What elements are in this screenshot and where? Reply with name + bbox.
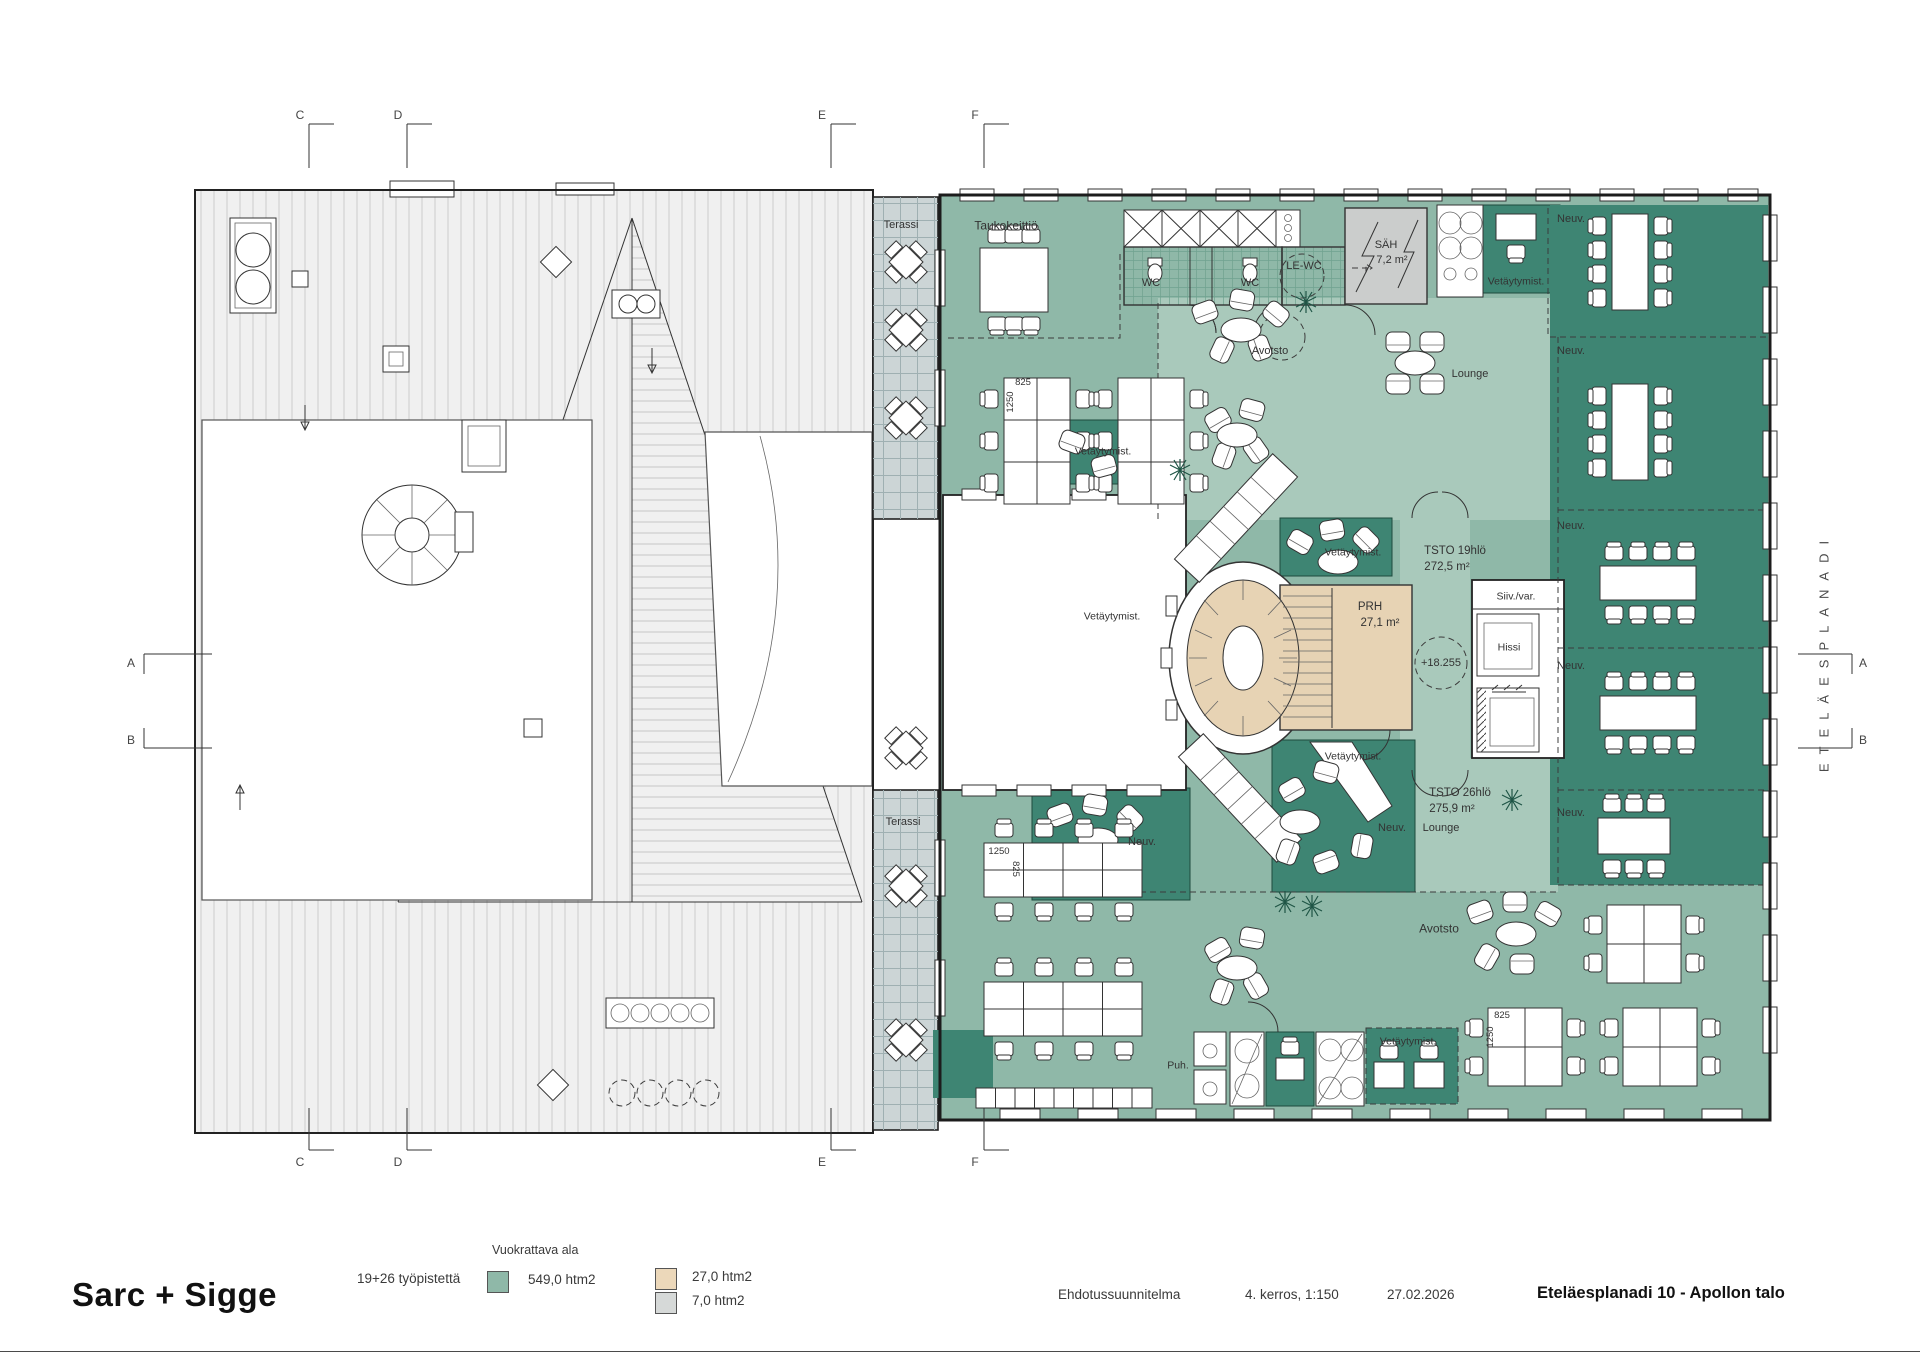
label-hissi: Hissi <box>1498 642 1521 653</box>
grid-col-e-top: E <box>818 108 826 122</box>
label-neuv-2: Neuv. <box>1557 346 1585 358</box>
project-title: Eteläesplanadi 10 - Apollon talo <box>1537 1284 1785 1303</box>
legend-workstations: 19+26 työpistettä <box>357 1271 460 1286</box>
label-vetaytymist-1: Vetäytymist. <box>1488 276 1545 287</box>
legend-swatch-gray <box>655 1292 677 1314</box>
main-stair-prh <box>1161 562 1412 760</box>
label-vetaytymist-6: Vetäytymist. <box>1380 1036 1437 1047</box>
label-siiv-var: Siiv./var. <box>1497 591 1536 602</box>
label-sah: SÄH <box>1375 240 1398 252</box>
left-building-roof <box>195 181 873 1133</box>
label-neuv-6: Neuv. <box>1378 823 1406 835</box>
firm-logo: Sarc + Sigge <box>72 1276 277 1314</box>
label-dim-1250-top: 1250 <box>1006 391 1016 412</box>
label-dim-825-bl: 825 <box>1010 861 1020 877</box>
label-neuv-3: Neuv. <box>1557 521 1585 533</box>
grid-col-f-top: F <box>971 108 978 122</box>
label-sah-area: 7,2 m² <box>1376 255 1407 267</box>
sheet-bottom-border <box>0 1351 1920 1352</box>
grid-col-c-top: C <box>296 108 305 122</box>
label-dim-825-br: 825 <box>1494 1011 1510 1021</box>
label-dim-1250-br: 1250 <box>1486 1026 1496 1047</box>
grid-col-d-bottom: D <box>394 1155 403 1169</box>
floor-plan-sheet: TerassiTerassiTaukokeittiöWCWCLE-WCSÄH7,… <box>0 0 1920 1358</box>
grid-row-b-left: B <box>127 733 135 747</box>
date: 27.02.2026 <box>1387 1287 1455 1302</box>
document-type: Ehdotussuunnitelma <box>1058 1287 1180 1302</box>
label-terassi-top: Terassi <box>884 220 919 232</box>
label-lounge-bottom: Lounge <box>1423 823 1460 835</box>
terrace-strips <box>873 197 938 1130</box>
label-vetaytymist-3: Vetäytymist. <box>1325 547 1382 558</box>
grid-col-e-bottom: E <box>818 1155 826 1169</box>
label-vetaytymist-5: Vetäytymist. <box>1325 751 1382 762</box>
label-tsto26: TSTO 26hlö <box>1429 787 1491 799</box>
legend-swatch-green <box>487 1271 509 1293</box>
legend-value-green: 549,0 htm2 <box>528 1272 596 1287</box>
grid-row-a-left: A <box>127 656 135 670</box>
elevator-block <box>1472 580 1564 758</box>
legend-title: Vuokrattava ala <box>492 1243 578 1257</box>
street-name: ETELÄESPLANADI <box>1817 532 1832 772</box>
label-prh-area: 27,1 m² <box>1361 617 1400 629</box>
legend-swatch-tan <box>655 1268 677 1290</box>
legend-value-tan: 27,0 htm2 <box>692 1269 752 1284</box>
label-neuv-4: Neuv. <box>1557 661 1585 673</box>
label-neuv-1: Neuv. <box>1557 214 1585 226</box>
label-level: +18.255 <box>1421 658 1461 670</box>
label-le-wc: LE-WC <box>1286 261 1321 273</box>
grid-col-c-bottom: C <box>296 1155 305 1169</box>
label-vetaytymist-4: Vetäytymist. <box>1084 611 1141 622</box>
label-tsto26-area: 275,9 m² <box>1429 803 1474 815</box>
label-tsto19: TSTO 19hlö <box>1424 545 1486 557</box>
label-neuv-7: Neuv. <box>1128 837 1156 849</box>
label-lounge-top: Lounge <box>1452 369 1489 381</box>
label-dim-825-top: 825 <box>1015 378 1031 388</box>
grid-row-a-right: A <box>1859 656 1867 670</box>
label-wc-left: WC <box>1142 278 1160 290</box>
label-avotsto-bottom: Avotsto <box>1419 923 1459 936</box>
floor-and-scale: 4. kerros, 1:150 <box>1245 1287 1339 1302</box>
floor-plan-drawing <box>0 0 1920 1358</box>
label-tsto19-area: 272,5 m² <box>1424 561 1469 573</box>
grid-col-d-top: D <box>394 108 403 122</box>
grid-row-b-right: B <box>1859 733 1867 747</box>
label-terassi-bottom: Terassi <box>886 817 921 829</box>
label-avotsto-top: Avotsto <box>1252 346 1289 358</box>
label-neuv-5: Neuv. <box>1557 808 1585 820</box>
legend-value-gray: 7,0 htm2 <box>692 1293 745 1308</box>
label-dim-1250-bl: 1250 <box>988 847 1009 857</box>
office-floor <box>933 189 1777 1120</box>
label-taukokeittio: Taukokeittiö <box>974 220 1037 233</box>
label-prh: PRH <box>1358 601 1382 613</box>
label-vetaytymist-2: Vetäytymist. <box>1075 446 1132 457</box>
label-wc-right: WC <box>1241 278 1259 290</box>
grid-col-f-bottom: F <box>971 1155 978 1169</box>
label-puh: Puh. <box>1167 1060 1189 1071</box>
locker-row <box>976 1088 1152 1108</box>
